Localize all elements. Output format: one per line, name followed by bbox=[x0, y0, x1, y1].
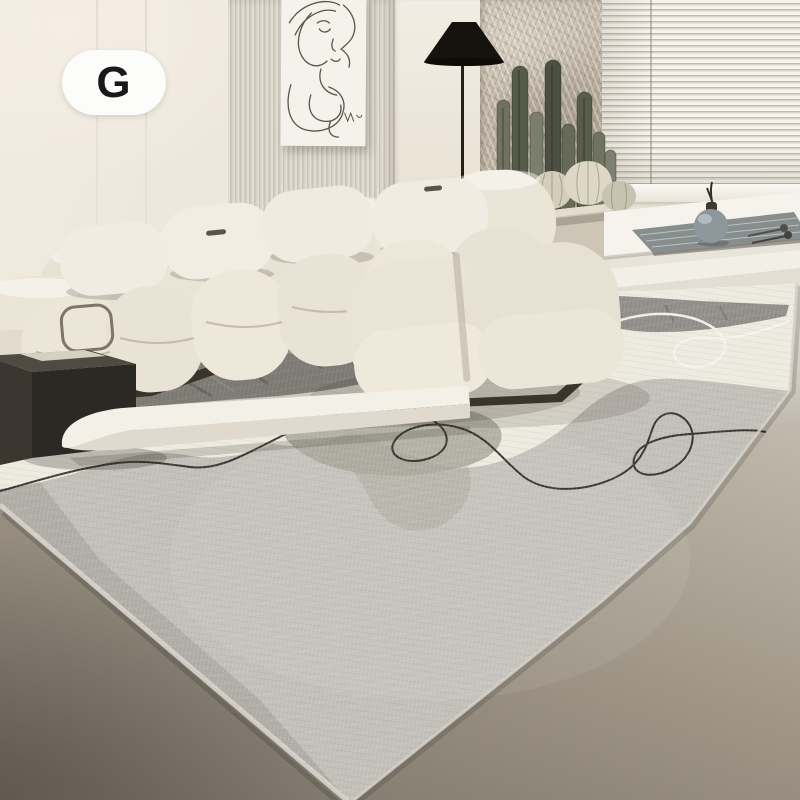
variant-badge: G bbox=[62, 50, 166, 115]
room-front-layer bbox=[0, 0, 800, 800]
variant-badge-label: G bbox=[96, 58, 131, 108]
product-photo: G bbox=[0, 0, 800, 800]
